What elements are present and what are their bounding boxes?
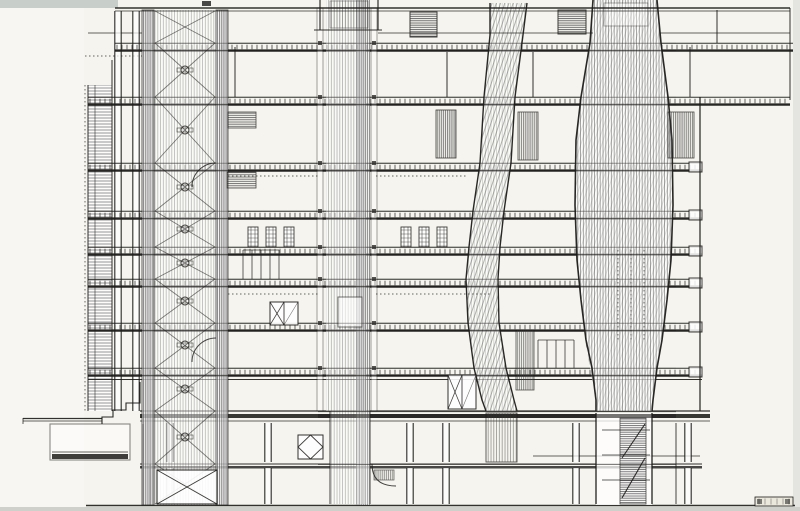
- wall-equipment-panel: [228, 112, 256, 128]
- basement-column: [573, 423, 579, 462]
- shaded-window-panel: [516, 330, 534, 390]
- ground-band-over-towers: [318, 414, 676, 418]
- ink-layer: [0, 0, 800, 511]
- rooftop-antenna: [202, 1, 211, 6]
- rooftop-plant-box: [410, 12, 437, 37]
- shaded-window-panel: [518, 112, 538, 160]
- basement-stair-treads: [620, 418, 646, 504]
- shaded-window-panel: [436, 110, 456, 158]
- tower-a-right-wall-hatch: [216, 10, 228, 505]
- basement-braced-panel: [298, 435, 323, 459]
- shaded-window-panel: [668, 112, 694, 158]
- tower-b-below-hatch: [330, 411, 370, 504]
- basement-column: [443, 423, 449, 462]
- tower-b-access-door: [338, 297, 362, 327]
- tower-d-cap-frame: [604, 3, 648, 26]
- subbasement-column: [685, 468, 691, 504]
- edge-band-right: [793, 0, 800, 507]
- louver-strip-hatch: [88, 85, 112, 411]
- tower-d-shaft-hatch2: [575, 0, 673, 411]
- rooftop-plant-box: [558, 10, 586, 34]
- subbasement-column: [265, 468, 271, 504]
- building-section-drawing: [0, 0, 800, 511]
- stamp-marks: [785, 499, 790, 504]
- tower-a-left-wall-hatch: [142, 10, 154, 505]
- subbasement-column: [407, 468, 413, 504]
- edge-band-bottom: [0, 507, 800, 511]
- subbasement-column: [443, 468, 449, 504]
- tower-b-cap-hatch: [330, 1, 368, 28]
- edge-band-top: [0, 0, 118, 8]
- duct-elbow-hatch: [374, 470, 394, 480]
- stamp-marks: [757, 499, 762, 504]
- wall-equipment-panel: [227, 172, 256, 188]
- podium-dark-band: [52, 454, 128, 459]
- basement-column: [685, 423, 691, 462]
- scanned-drawing-page: [0, 0, 800, 511]
- basement-column: [265, 423, 271, 462]
- subbasement-column: [573, 468, 579, 504]
- basement-column: [407, 423, 413, 462]
- tower-a-core-hatch: [154, 10, 216, 505]
- tower-c-legs: [486, 413, 517, 462]
